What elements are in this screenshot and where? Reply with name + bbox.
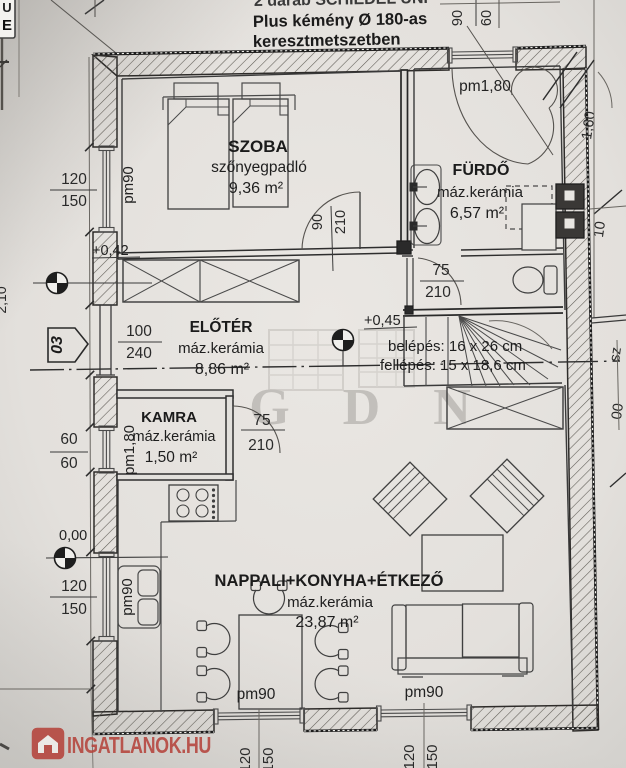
svg-text:keresztmetszetben: keresztmetszetben xyxy=(253,30,401,51)
svg-text:120: 120 xyxy=(61,578,87,595)
svg-text:INGATLANOK.HU: INGATLANOK.HU xyxy=(67,733,211,759)
svg-text:8,86 m²: 8,86 m² xyxy=(195,361,250,378)
svg-text:SZOBA: SZOBA xyxy=(228,137,288,156)
svg-text:máz.kerámia: máz.kerámia xyxy=(437,184,524,201)
svg-text:Plus kémény Ø 180-as: Plus kémény Ø 180-as xyxy=(253,10,428,31)
svg-text:03: 03 xyxy=(49,336,66,354)
svg-text:sz: sz xyxy=(607,346,625,363)
svg-text:150: 150 xyxy=(61,193,87,210)
svg-text:pm90: pm90 xyxy=(119,578,136,616)
svg-text:100: 100 xyxy=(126,323,152,340)
svg-text:150: 150 xyxy=(260,747,277,768)
svg-text:pm1,80: pm1,80 xyxy=(459,78,511,95)
svg-text:60: 60 xyxy=(60,455,78,472)
svg-text:6,57 m²: 6,57 m² xyxy=(450,205,505,222)
svg-text:23,87 m²: 23,87 m² xyxy=(295,614,359,631)
svg-text:210: 210 xyxy=(248,437,274,454)
svg-text:120: 120 xyxy=(401,744,418,768)
svg-text:szőnyegpadló: szőnyegpadló xyxy=(211,159,307,176)
svg-text:210: 210 xyxy=(333,210,349,234)
svg-text:pm90: pm90 xyxy=(237,686,276,703)
svg-text:90: 90 xyxy=(310,214,326,230)
svg-text:120: 120 xyxy=(61,171,87,188)
svg-text:+0,45: +0,45 xyxy=(364,313,401,329)
svg-text:210: 210 xyxy=(425,284,451,301)
svg-text:máz.kerámia: máz.kerámia xyxy=(287,594,374,611)
svg-text:fellépés: 15 x 18,6 cm: fellépés: 15 x 18,6 cm xyxy=(380,357,526,374)
svg-text:60: 60 xyxy=(479,10,495,26)
svg-text:00: 00 xyxy=(609,402,626,420)
svg-text:KAMRA: KAMRA xyxy=(141,409,197,426)
svg-text:1,50 m²: 1,50 m² xyxy=(145,449,198,466)
svg-text:120: 120 xyxy=(237,747,254,768)
svg-text:+0,42: +0,42 xyxy=(92,243,129,259)
svg-text:75: 75 xyxy=(253,412,270,429)
svg-text:0,00: 0,00 xyxy=(59,528,87,544)
svg-text:60: 60 xyxy=(60,431,78,448)
svg-text:máz.kerámia: máz.kerámia xyxy=(133,429,217,445)
svg-text:2,10: 2,10 xyxy=(0,286,9,313)
svg-text:240: 240 xyxy=(126,345,152,362)
svg-text:ELŐTÉR: ELŐTÉR xyxy=(190,318,253,336)
svg-text:E: E xyxy=(2,17,12,34)
svg-text:75: 75 xyxy=(432,262,449,279)
svg-text:150: 150 xyxy=(424,744,441,768)
svg-text:belépés: 16 x 26 cm: belépés: 16 x 26 cm xyxy=(388,338,522,355)
svg-text:150: 150 xyxy=(61,601,87,618)
svg-text:pm90: pm90 xyxy=(120,166,137,204)
svg-text:U: U xyxy=(2,0,11,15)
svg-text:9,36 m²: 9,36 m² xyxy=(229,180,284,197)
svg-text:pm90: pm90 xyxy=(405,684,444,701)
svg-text:90: 90 xyxy=(450,10,466,26)
svg-text:NAPPALI+KONYHA+ÉTKEZŐ: NAPPALI+KONYHA+ÉTKEZŐ xyxy=(215,571,444,590)
svg-text:FÜRDŐ: FÜRDŐ xyxy=(453,160,510,179)
svg-text:máz.kerámia: máz.kerámia xyxy=(178,340,265,357)
